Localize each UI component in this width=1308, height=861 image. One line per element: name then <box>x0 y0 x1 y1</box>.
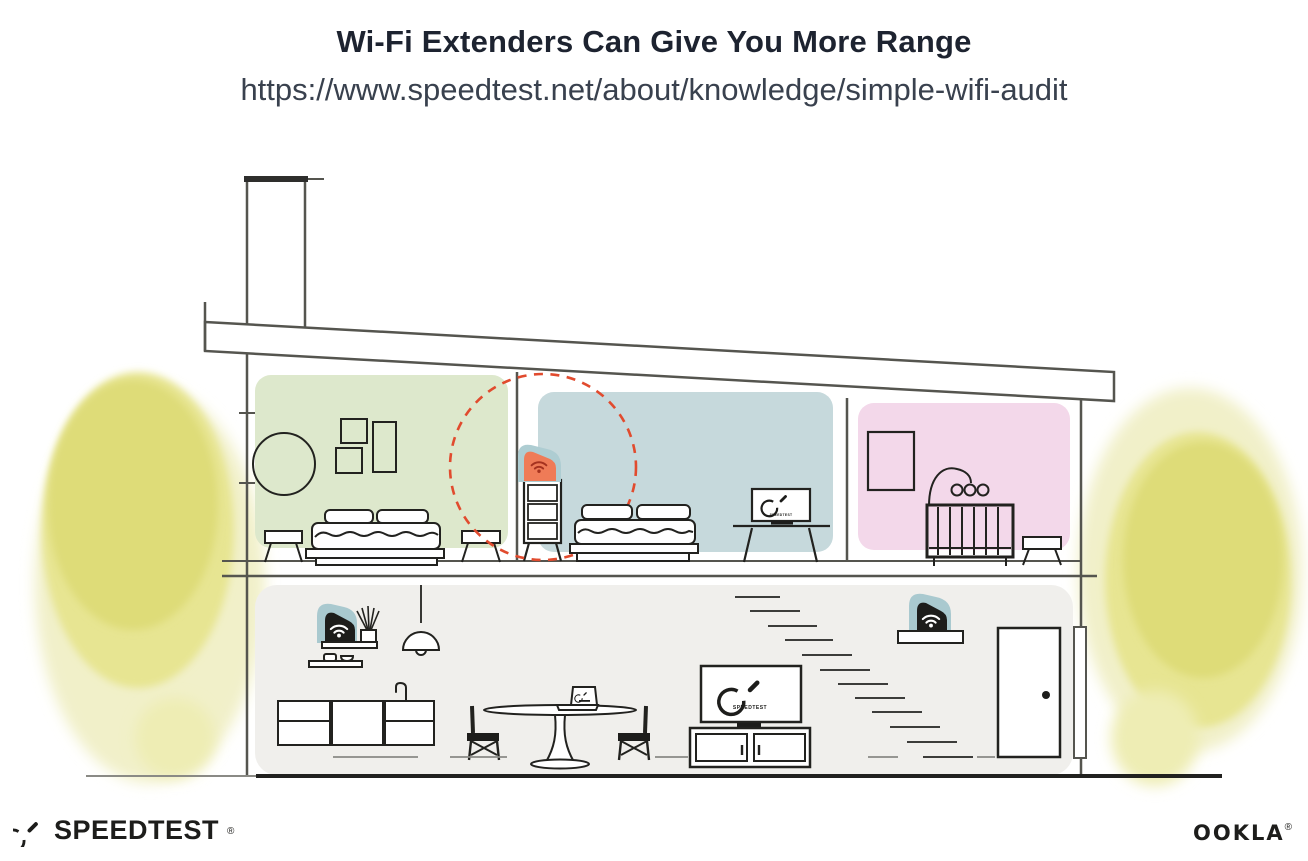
shelf-upper <box>322 642 377 648</box>
shelf-lower <box>309 661 362 667</box>
living-room-tv-label: SPEEDTEST <box>733 705 767 711</box>
shelf-right <box>898 631 963 643</box>
nursery-pink-panel <box>858 403 1070 550</box>
bedroom-tv-label: SPEEDTEST <box>770 513 793 517</box>
speedtest-gauge-icon <box>13 814 46 847</box>
speedtest-wordmark: SPEEDTEST <box>54 815 219 846</box>
tree-blob-left <box>35 372 265 783</box>
living-room-tv: SPEEDTEST <box>701 666 801 727</box>
chimney <box>244 176 324 330</box>
tv-console <box>690 728 810 767</box>
tree-blob-right <box>1078 388 1302 786</box>
registered-mark: ® <box>227 826 234 837</box>
speedtest-logo: SPEEDTEST ® <box>13 814 234 847</box>
registered-mark: ® <box>1285 822 1292 833</box>
house-illustration: SPEEDTEST <box>0 0 1308 861</box>
door-knob <box>1042 691 1050 699</box>
ookla-wordmark: OOKLA <box>1193 821 1285 845</box>
ookla-logo: OOKLA ® <box>1193 821 1292 845</box>
door <box>998 628 1060 757</box>
wall-slat <box>1074 627 1086 758</box>
